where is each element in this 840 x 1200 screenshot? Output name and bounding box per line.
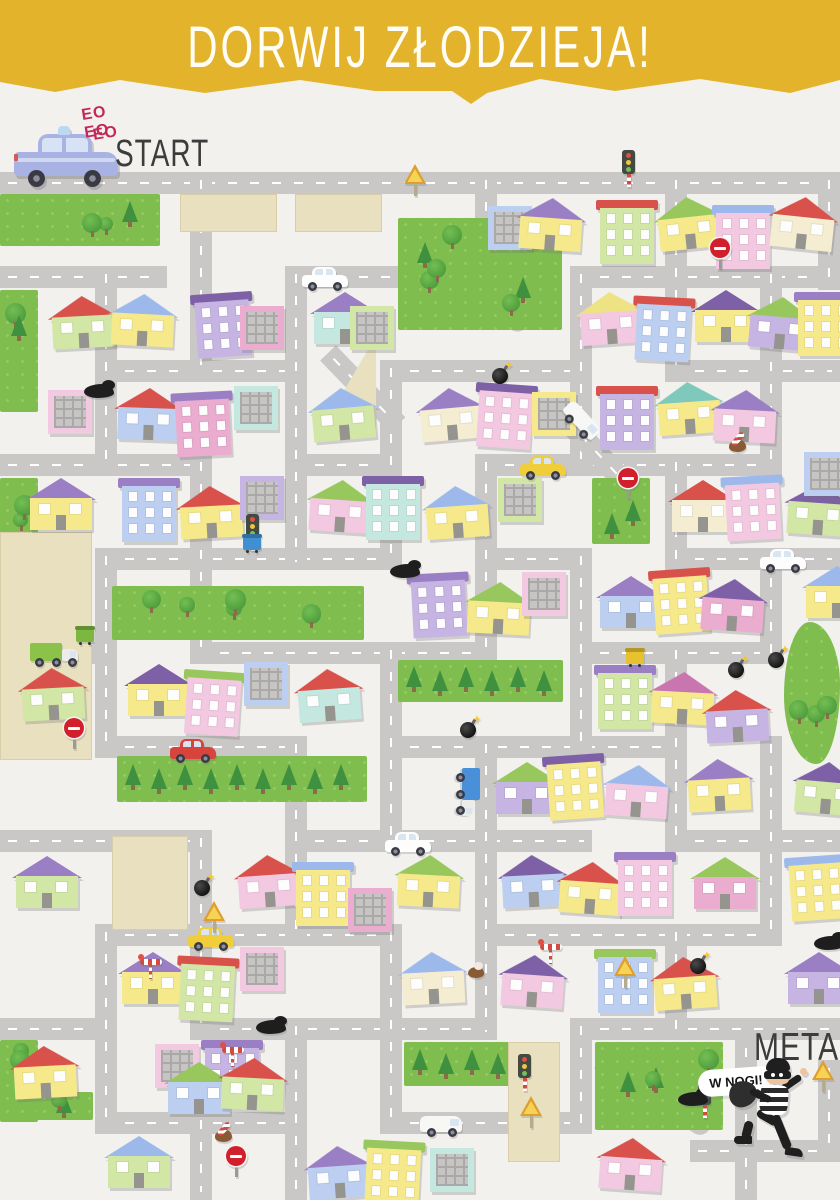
pine-tree-icon [432, 670, 448, 691]
pine-tree-icon [333, 764, 349, 785]
apartment-building [598, 665, 652, 729]
park [117, 756, 367, 802]
building [430, 1148, 474, 1192]
road [665, 360, 840, 382]
pine-tree-icon [151, 768, 167, 789]
pine-tree-icon [458, 666, 474, 687]
pine-tree-icon [11, 315, 27, 336]
building [240, 947, 284, 991]
house [806, 566, 840, 618]
apartment-building [798, 292, 840, 356]
game-title: DORWIJ ZŁODZIEJA! [0, 14, 840, 81]
apartment-building [716, 205, 770, 269]
pine-tree-icon [536, 670, 552, 691]
house [604, 763, 669, 819]
road [475, 924, 782, 946]
road [665, 830, 840, 852]
tree-icon [442, 225, 462, 245]
pine-tree-icon [604, 513, 620, 534]
road [190, 1018, 497, 1040]
road [285, 1018, 307, 1200]
vacant-lot [180, 194, 277, 232]
road [285, 266, 307, 570]
pine-tree-icon [125, 764, 141, 785]
house [397, 853, 462, 908]
start-label: START [115, 132, 209, 175]
pine-tree-icon [281, 764, 297, 785]
house [694, 857, 756, 909]
apartment-building [600, 386, 654, 450]
road [95, 548, 117, 758]
house [705, 688, 770, 743]
tree-icon [789, 700, 808, 719]
building [804, 452, 840, 496]
apartment-building [618, 852, 672, 916]
building [498, 478, 542, 522]
building [240, 306, 284, 350]
apartment-building [366, 476, 420, 540]
apartment-building [476, 382, 534, 450]
house [308, 478, 373, 534]
apartment-building [122, 478, 176, 542]
house [13, 1044, 78, 1099]
house [30, 478, 92, 530]
apartment-building [788, 854, 840, 922]
building [348, 888, 392, 932]
park [784, 622, 840, 764]
park [592, 478, 650, 544]
house [769, 194, 836, 252]
road [95, 924, 117, 1134]
house [656, 380, 721, 436]
tree-icon [502, 294, 520, 312]
road [570, 1018, 592, 1134]
park [0, 290, 38, 412]
pine-tree-icon [515, 277, 531, 298]
pine-tree-icon [229, 764, 245, 785]
pine-tree-icon [412, 1049, 428, 1070]
house [713, 388, 778, 443]
road [380, 736, 687, 758]
building [522, 572, 566, 616]
house [296, 667, 361, 723]
tree-icon [82, 213, 102, 233]
building [244, 662, 288, 706]
house [418, 385, 484, 442]
house [558, 860, 623, 916]
house [794, 759, 840, 816]
tree-icon [142, 590, 161, 609]
house [518, 196, 583, 252]
tree-icon [225, 589, 247, 611]
pine-tree-icon [203, 768, 219, 789]
apartment-building [178, 956, 235, 1023]
house [652, 955, 717, 1011]
pine-tree-icon [438, 1053, 454, 1074]
game-poster: DORWIJ ZŁODZIEJA! EO EO EO START META W … [0, 0, 840, 1200]
road [380, 924, 402, 1134]
apartment-building [546, 753, 604, 821]
park [112, 586, 364, 640]
house [700, 577, 765, 633]
pine-tree-icon [620, 1071, 636, 1092]
house [128, 664, 190, 716]
apartment-building [184, 669, 242, 737]
road [0, 266, 167, 288]
tree-icon [302, 604, 321, 623]
road [190, 1112, 212, 1200]
tree-icon [698, 1049, 719, 1070]
road [380, 1112, 592, 1134]
pine-tree-icon [625, 500, 641, 521]
house [598, 1136, 663, 1192]
house [310, 385, 376, 442]
house [687, 757, 752, 812]
apartment-building [600, 200, 654, 264]
apartment-building [364, 1140, 421, 1200]
house [108, 1136, 170, 1188]
apartment-building [296, 862, 350, 926]
siren-icon [58, 126, 70, 135]
road [285, 830, 592, 852]
building [234, 386, 278, 430]
pine-tree-icon [122, 201, 138, 222]
house [401, 950, 466, 1005]
house [111, 292, 176, 347]
pine-tree-icon [177, 764, 193, 785]
pine-tree-icon [307, 768, 323, 789]
apartment-building [724, 475, 781, 542]
pine-tree-icon [490, 1053, 506, 1074]
park [0, 194, 160, 246]
tree-icon [645, 1071, 661, 1087]
house [306, 1144, 371, 1200]
building [48, 390, 92, 434]
apartment-building [174, 391, 231, 458]
building [350, 306, 394, 350]
pine-tree-icon [510, 666, 526, 687]
pine-tree-icon [484, 670, 500, 691]
house [788, 952, 840, 1004]
house [501, 853, 566, 908]
tree-icon [427, 259, 446, 278]
park [398, 660, 563, 702]
house [21, 666, 86, 721]
house [16, 856, 78, 908]
apartment-building [634, 296, 691, 363]
road [570, 266, 840, 288]
pine-tree-icon [406, 666, 422, 687]
tree-icon [817, 696, 837, 716]
road [760, 736, 782, 946]
house [179, 484, 244, 539]
tree-icon [179, 597, 195, 613]
pine-tree-icon [464, 1049, 480, 1070]
vacant-lot [295, 194, 382, 232]
house [500, 953, 565, 1009]
pine-tree-icon [255, 768, 271, 789]
vacant-lot [112, 836, 188, 930]
apartment-building [410, 572, 467, 639]
road [380, 360, 592, 382]
road [570, 548, 592, 758]
house [51, 294, 116, 349]
city-map[interactable] [0, 0, 840, 1200]
thief-icon [726, 1058, 818, 1164]
house [424, 484, 489, 540]
